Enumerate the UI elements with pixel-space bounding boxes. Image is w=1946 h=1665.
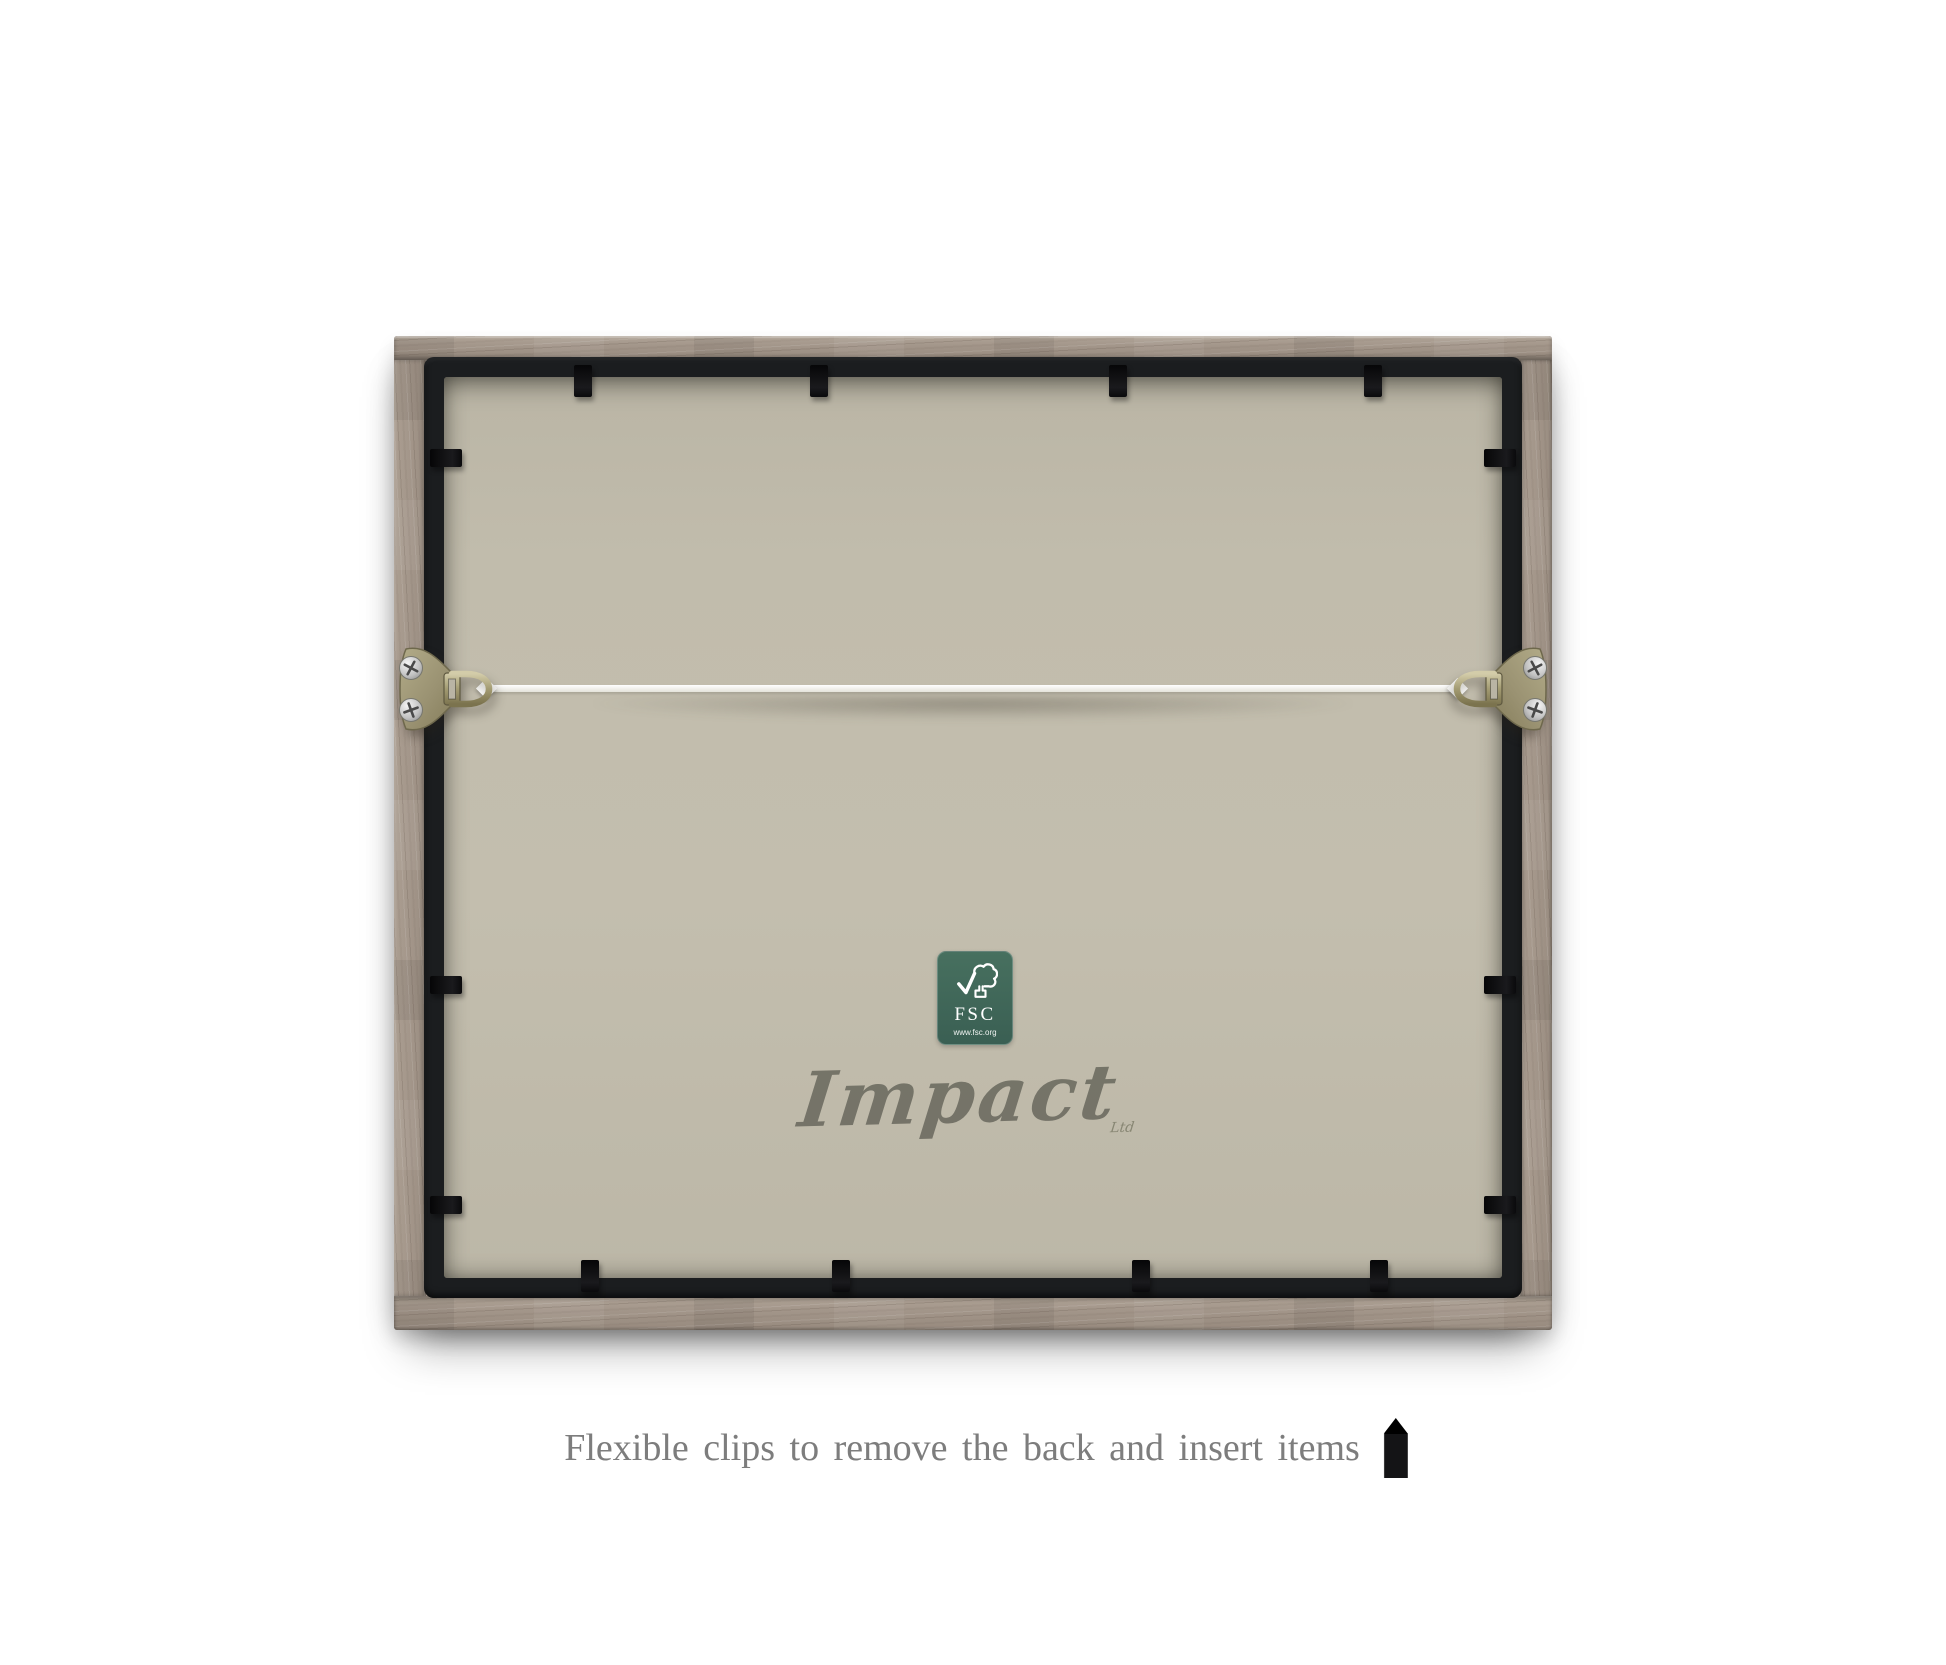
brand-name: Impact bbox=[795, 1047, 1124, 1144]
flexible-clip-bottom bbox=[1132, 1260, 1150, 1292]
brand-suffix: Ltd bbox=[1109, 1120, 1135, 1137]
flexible-clip-right bbox=[1484, 976, 1516, 994]
hanging-cord bbox=[486, 685, 1460, 692]
flexible-clip-right bbox=[1484, 1196, 1516, 1214]
clip-icon bbox=[1384, 1418, 1408, 1478]
flexible-clip-top bbox=[574, 365, 592, 397]
page: { "caption": { "text": "Flexible clips t… bbox=[0, 0, 1946, 1665]
flexible-clip-left bbox=[430, 1196, 462, 1214]
cord-shadow bbox=[504, 696, 1442, 738]
backing-board bbox=[444, 377, 1502, 1278]
flexible-clip-left bbox=[430, 449, 462, 467]
flexible-clip-top bbox=[1109, 365, 1127, 397]
flexible-clip-bottom bbox=[1370, 1260, 1388, 1292]
wood-frame-left bbox=[394, 360, 426, 1296]
flexible-clip-right bbox=[1484, 449, 1516, 467]
flexible-clip-bottom bbox=[581, 1260, 599, 1292]
flexible-clip-top bbox=[810, 365, 828, 397]
picture-frame-back: FSC www.fsc.org ImpactLtd bbox=[394, 336, 1552, 1330]
caption-text: Flexible clips to remove the back and in… bbox=[564, 1426, 1360, 1470]
flexible-clip-bottom bbox=[832, 1260, 850, 1292]
wood-frame-bottom bbox=[394, 1296, 1552, 1330]
screw-top bbox=[400, 657, 423, 680]
fsc-label: FSC www.fsc.org bbox=[937, 951, 1013, 1045]
flexible-clip-top bbox=[1364, 365, 1382, 397]
brand-logo: ImpactLtd bbox=[766, 1053, 1176, 1139]
fsc-title: FSC bbox=[954, 1004, 995, 1026]
d-ring-hanger-right bbox=[1442, 641, 1552, 737]
d-ring-hanger-left bbox=[394, 641, 504, 737]
screw-bottom bbox=[400, 699, 423, 722]
fsc-url: www.fsc.org bbox=[953, 1028, 996, 1037]
caption: Flexible clips to remove the back and in… bbox=[564, 1408, 1408, 1488]
wood-frame-right bbox=[1520, 360, 1552, 1296]
fsc-tree-checkmark-icon bbox=[952, 961, 998, 1003]
flexible-clip-left bbox=[430, 976, 462, 994]
